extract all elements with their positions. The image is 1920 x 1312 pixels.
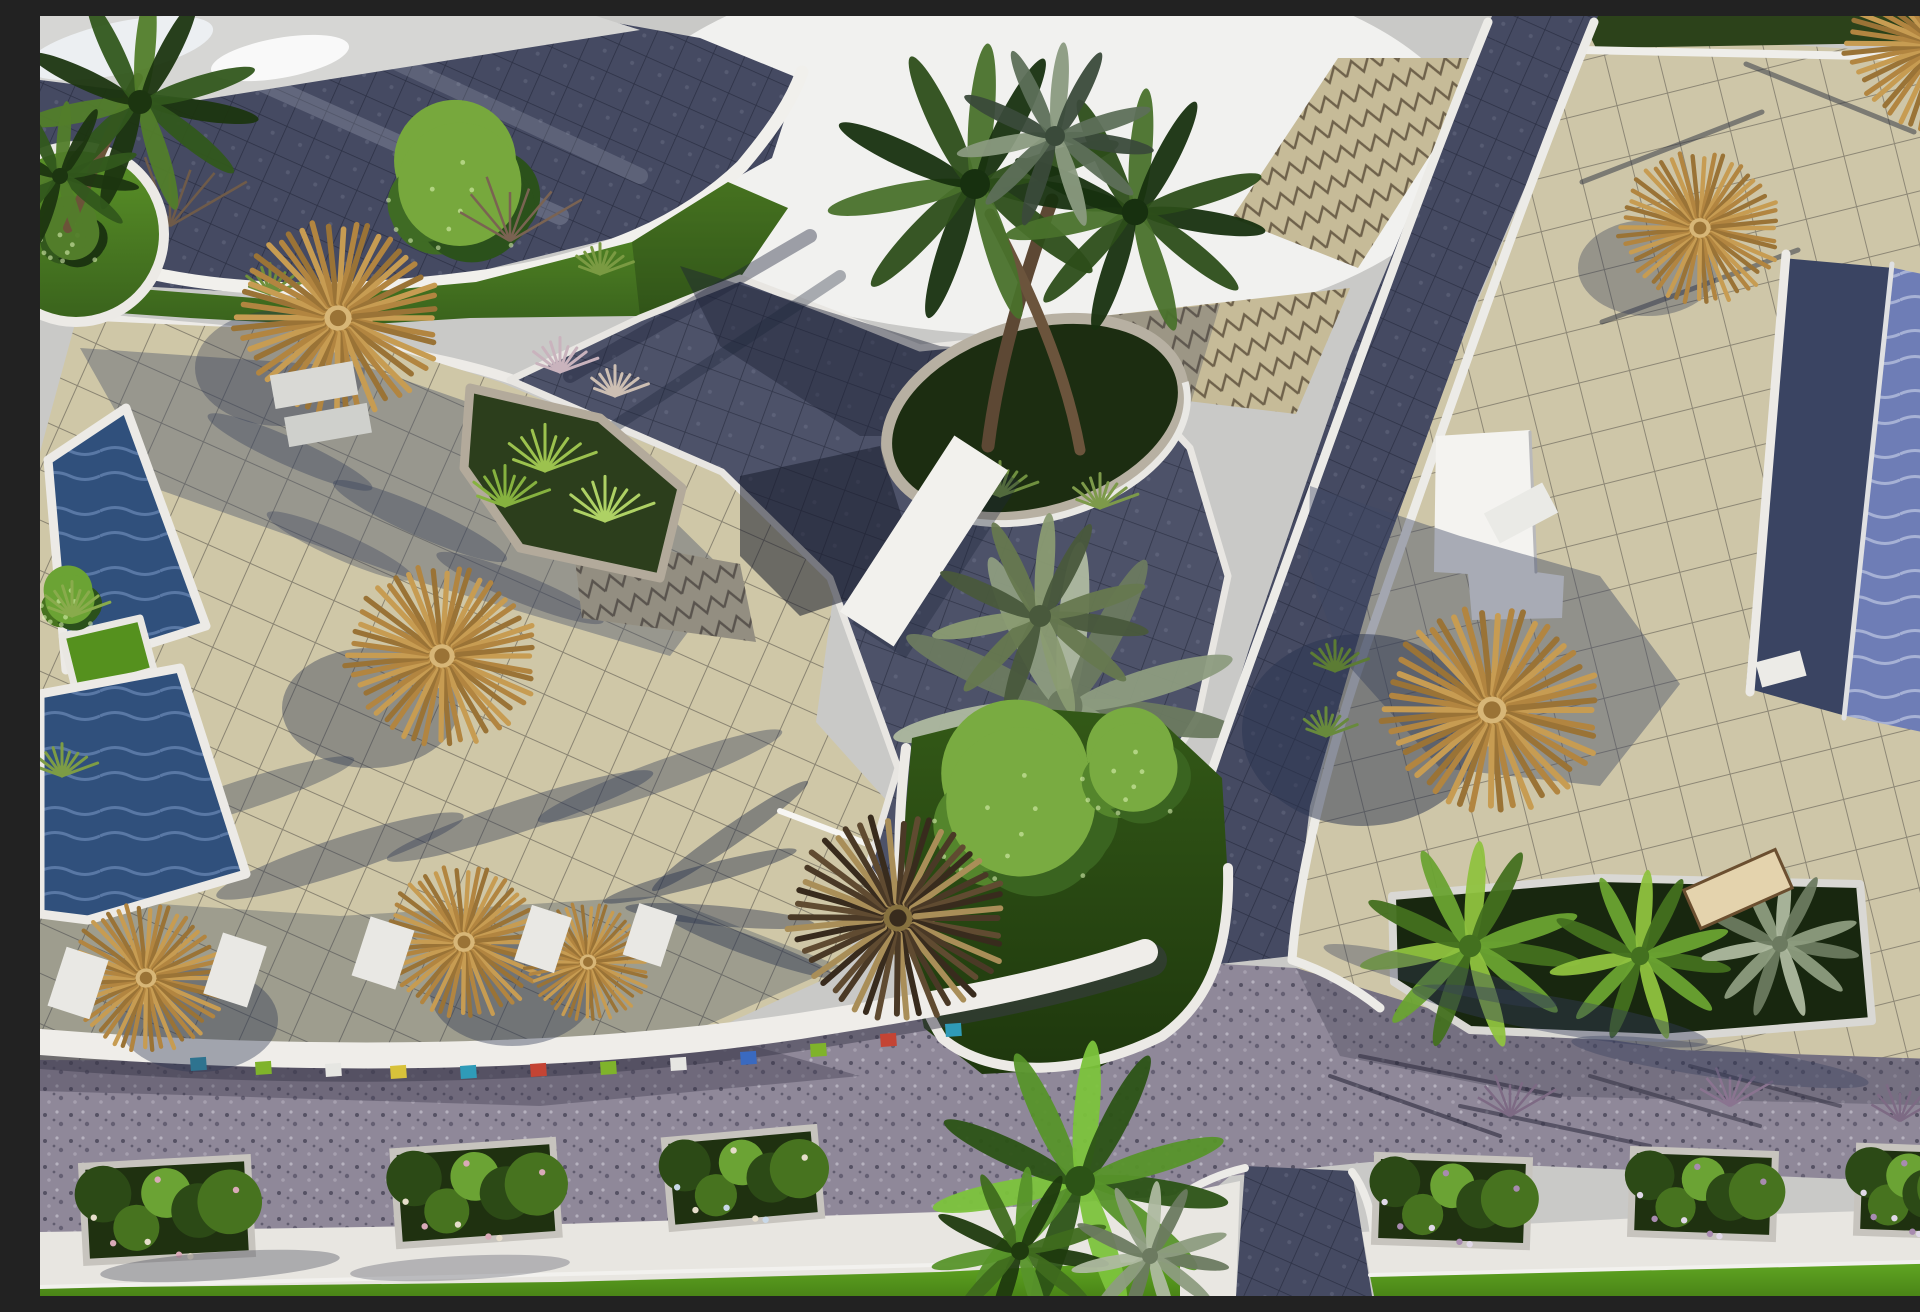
aerial-resort-render: [40, 16, 1920, 1296]
mosaic-tiles-tile: [325, 1063, 342, 1077]
straw-umbrella-hub: [434, 648, 449, 663]
corner-planter-bush-speckle: [58, 233, 63, 238]
palm-canopy-silver-core: [1045, 126, 1065, 146]
mosaic-tiles-tile: [670, 1057, 687, 1071]
straw-umbrella-spoke: [1385, 709, 1475, 710]
planter-bush-clump: [1089, 724, 1177, 812]
planter-bush-speckle: [1085, 798, 1090, 803]
mosaic-tiles-tile: [945, 1023, 962, 1037]
planter-bush-speckle: [1033, 806, 1038, 811]
mosaic-tiles-tile: [740, 1051, 757, 1065]
straw-umbrella-partial-spoke: [1847, 43, 1920, 44]
road-lower: [1236, 1166, 1372, 1296]
planter-bush-speckle: [992, 876, 997, 881]
straw-umbrella-hub: [458, 936, 471, 949]
corner-planter-bush-speckle: [92, 257, 97, 262]
pool-planter-bush-speckle: [59, 622, 64, 627]
mosaic-tiles-tile: [390, 1065, 407, 1079]
palm-canopy-core: [1122, 199, 1148, 225]
planter-bush-speckle: [1133, 750, 1138, 755]
pool-planter-bush-speckle: [48, 619, 53, 624]
dark-straw-umbrella-spoke: [897, 934, 898, 1013]
corner-planter-bush-speckle: [65, 250, 70, 255]
straw-umbrella-spoke: [441, 670, 442, 740]
corner-palm-canopy-core: [128, 90, 152, 114]
straw-umbrella-spoke: [348, 655, 427, 656]
straw-umbrella-spoke: [463, 954, 464, 1013]
planter-bush-speckle: [1080, 777, 1085, 782]
fan-palm-core: [1065, 1166, 1095, 1196]
straw-umbrella-hub: [583, 957, 593, 967]
mosaic-tiles-tile: [460, 1065, 477, 1079]
corner-planter-bush-speckle: [42, 250, 47, 255]
straw-umbrella-hub: [140, 972, 152, 984]
corner-planter-bush-speckle: [48, 255, 53, 260]
pool-planter-bush-speckle: [88, 621, 93, 626]
big-tree-clump: [398, 123, 521, 246]
big-tree-speckle: [430, 187, 435, 192]
planter-bush-speckle: [1019, 832, 1024, 837]
planter-bush-speckle: [932, 819, 937, 824]
straw-umbrella-spoke: [1620, 227, 1687, 228]
straw-umbrella-hub: [1694, 222, 1707, 235]
big-tree-speckle: [436, 245, 441, 250]
planter-bush-speckle: [1080, 873, 1085, 878]
straw-umbrella-spoke: [237, 317, 322, 318]
straw-umbrella-spoke: [1699, 240, 1700, 299]
mosaic-tiles-tile: [600, 1061, 617, 1075]
planter-bush-speckle: [1022, 773, 1027, 778]
planter-bush-speckle: [1140, 769, 1145, 774]
planter-bush-speckle: [1116, 811, 1121, 816]
mosaic-tiles-tile: [255, 1061, 272, 1075]
planter-bush-speckle: [1005, 854, 1010, 859]
big-tree-speckle: [509, 243, 514, 248]
big-tree-speckle: [460, 160, 465, 165]
big-tree-speckle: [446, 227, 451, 232]
mosaic-tiles-tile: [530, 1063, 547, 1077]
big-tree-speckle: [394, 227, 399, 232]
bed-fan-palm-silver-core: [1772, 936, 1788, 952]
scene-layers: [40, 16, 1920, 1296]
corner-palm-canopy-core: [52, 168, 68, 184]
straw-umbrella-hub: [330, 310, 346, 326]
corner-planter-bush-speckle: [60, 258, 65, 263]
straw-umbrella-spoke: [145, 990, 146, 1047]
mosaic-tiles-tile: [810, 1043, 827, 1057]
fan-palm-core: [1011, 1242, 1029, 1260]
planter-bush-speckle: [1111, 769, 1116, 774]
planter-bush-speckle: [1168, 809, 1173, 814]
fan-palm-silver-core: [1142, 1248, 1158, 1264]
bed-fan-palm-core: [1631, 947, 1649, 965]
planter-bush-speckle: [1131, 784, 1136, 789]
straw-umbrella-spoke: [587, 971, 588, 1017]
palm-canopy-core: [960, 169, 990, 199]
bed-fan-palm-core: [1459, 935, 1481, 957]
dark-straw-umbrella-hub: [889, 909, 906, 926]
straw-umbrella-spoke: [1491, 726, 1492, 805]
pool-planter-bush-speckle: [42, 615, 47, 620]
straw-umbrella-hub: [1483, 701, 1500, 718]
mosaic-tiles-tile: [880, 1033, 897, 1047]
big-tree-speckle: [469, 188, 474, 193]
big-tree-speckle: [408, 238, 413, 243]
scene-svg: [40, 16, 1920, 1296]
planter-bush-speckle: [1096, 806, 1101, 811]
dark-straw-umbrella-spoke: [791, 917, 881, 918]
corner-planter-bush-speckle: [70, 242, 75, 247]
planter-bush-speckle: [1123, 797, 1128, 802]
planter-bush-speckle: [985, 805, 990, 810]
big-tree-speckle: [386, 198, 391, 203]
silver-palm-upper-core: [1029, 605, 1051, 627]
